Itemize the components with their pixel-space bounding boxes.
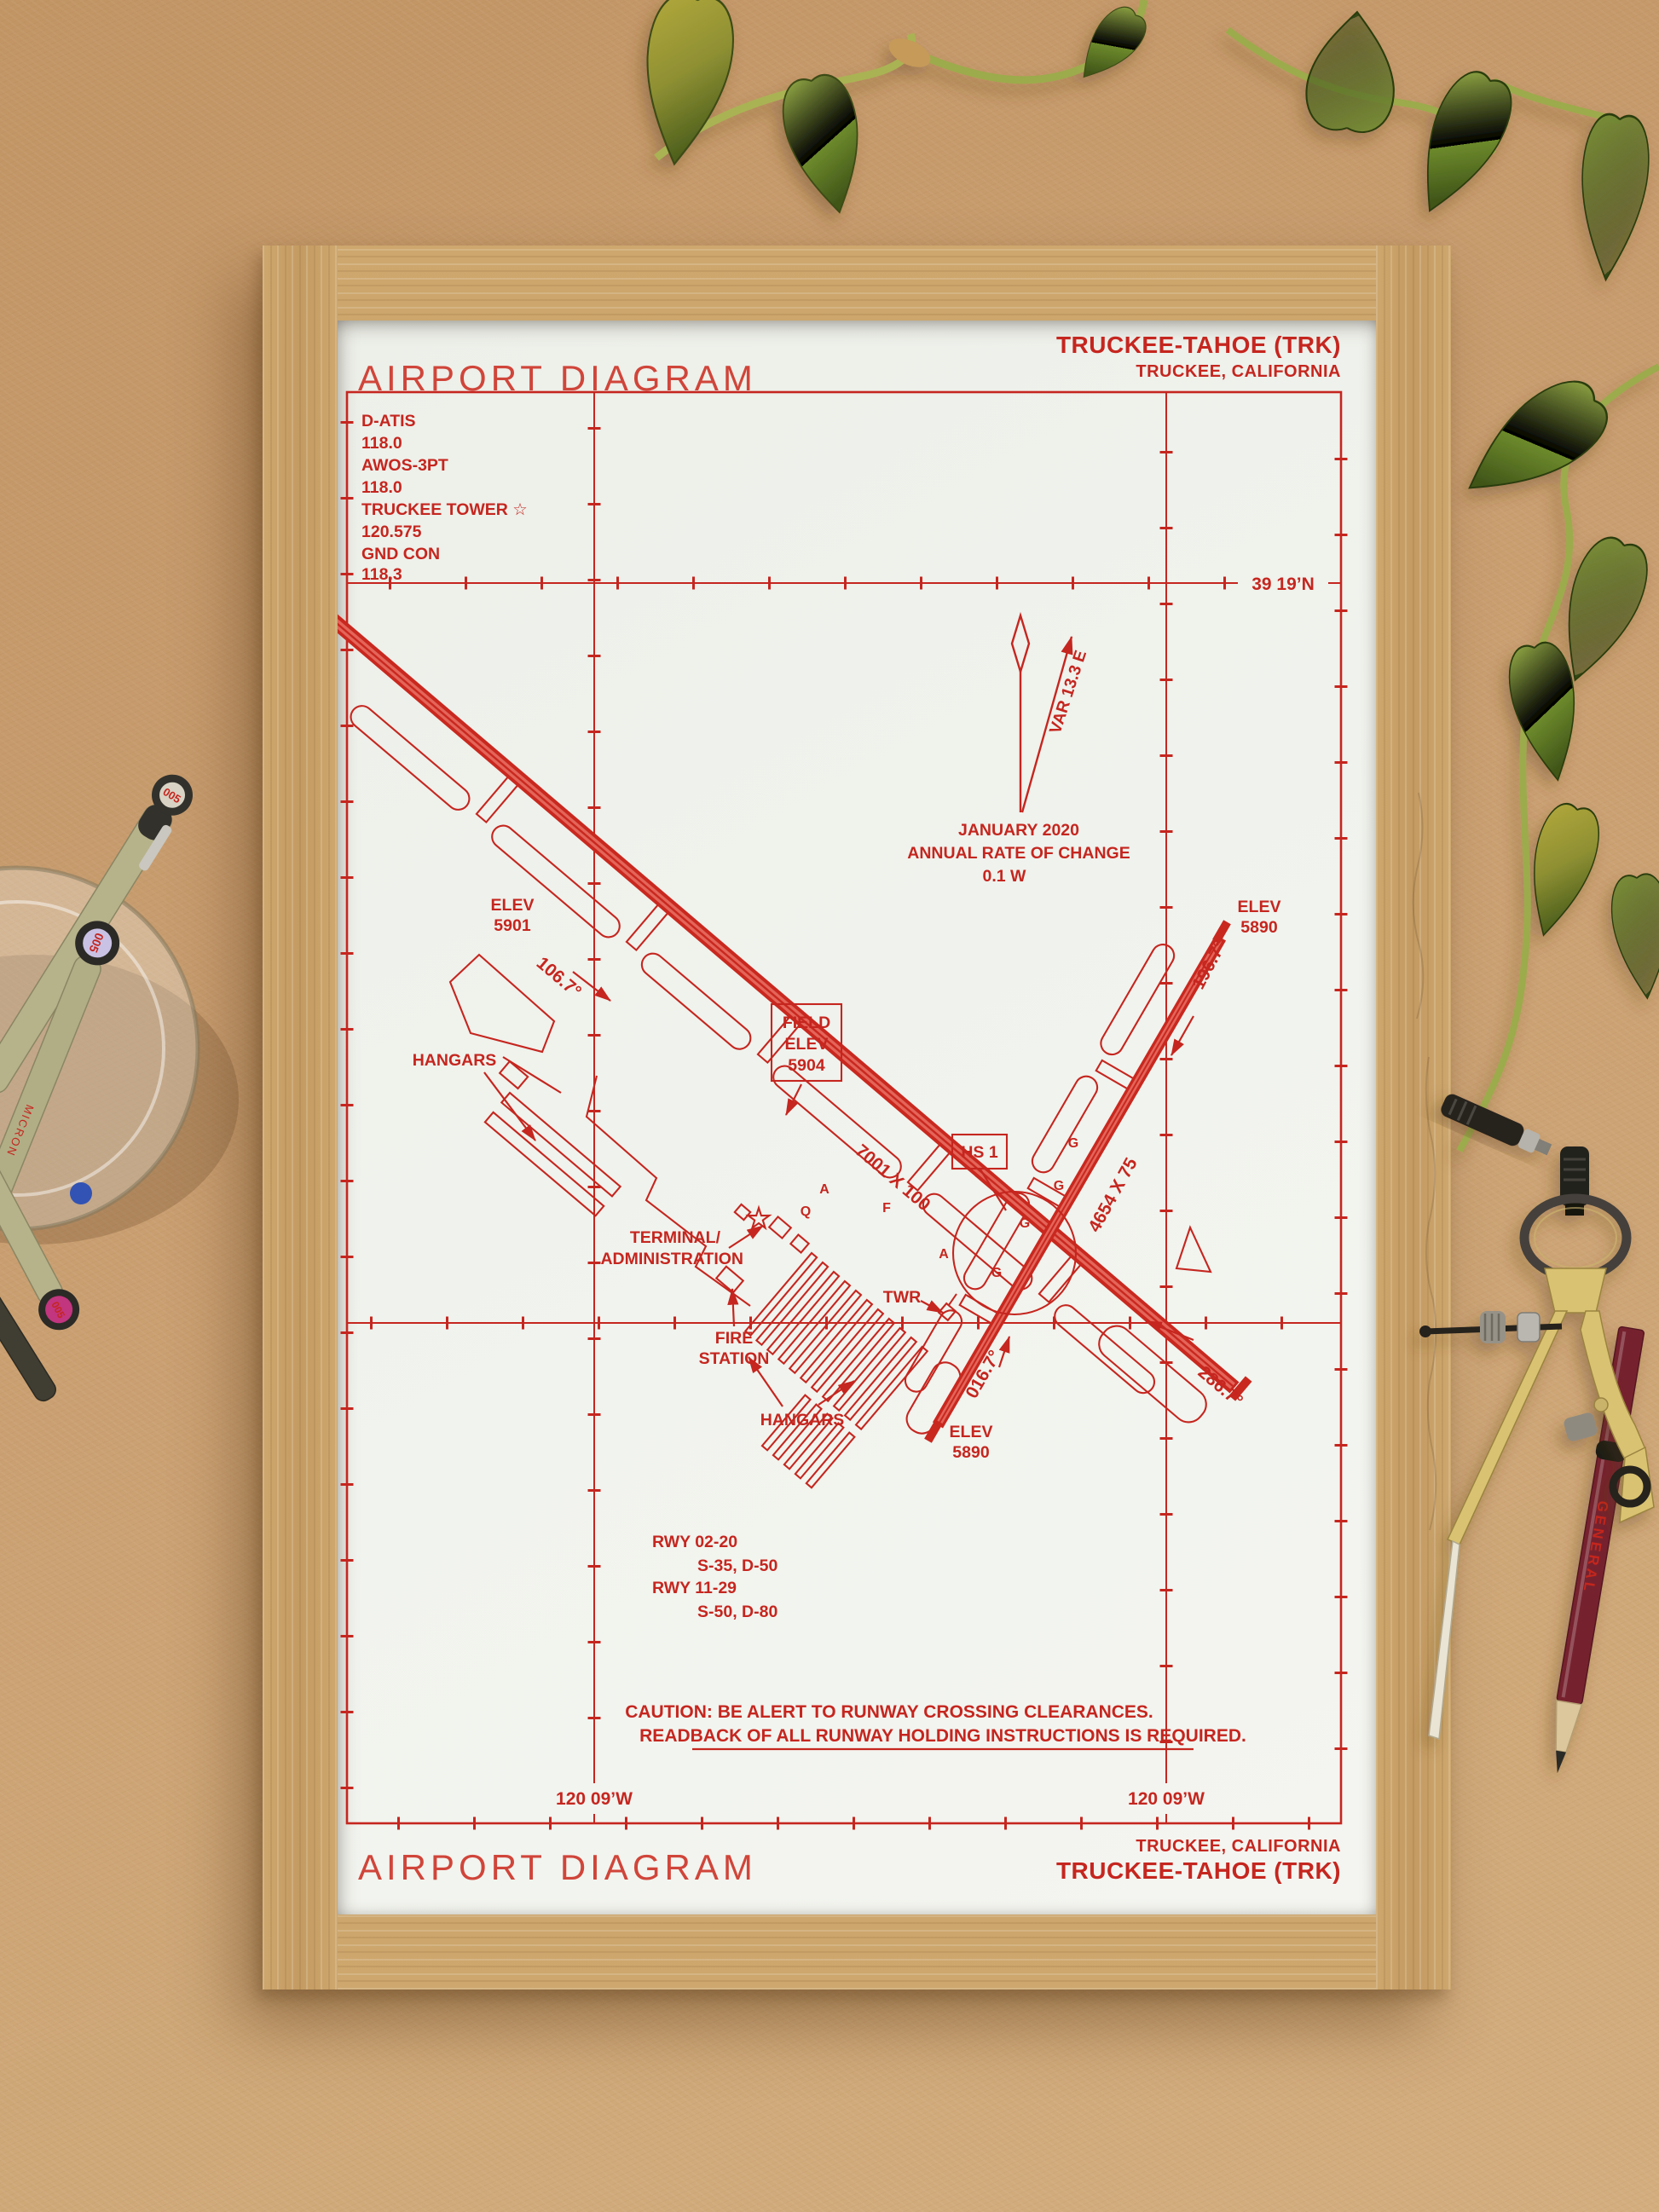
mag-rate: ANNUAL RATE OF CHANGE — [907, 844, 1130, 863]
compass-left-leg — [1448, 1311, 1567, 1545]
runway-11-29 — [338, 569, 1252, 1401]
scene-photo-of-framed-airport-diagram: { "colors": { "ink": "#c5261f", "paper":… — [0, 0, 1659, 2212]
runway-data-block: RWY 02-20 S-35, D-50 RWY 11-29 S-50, D-8… — [652, 1533, 777, 1621]
taxiway-letter: A — [939, 1247, 949, 1262]
field-elev-l3: 5904 — [788, 1056, 825, 1075]
runway-data-line: S-50, D-80 — [697, 1603, 777, 1621]
freq-line: 118.0 — [361, 478, 402, 497]
pencil-wood-tip — [1548, 1701, 1581, 1753]
plant-vine-top-right — [1228, 9, 1653, 283]
freq-line: 118.0 — [361, 434, 402, 453]
elev11-l1: ELEV — [491, 896, 535, 915]
rwy20-heading: 196.7° — [1188, 938, 1230, 993]
runway-data-line: RWY 11-29 — [652, 1579, 737, 1597]
micron-pen: 005 MICRON — [0, 915, 126, 1250]
chart-neatlines — [347, 392, 1341, 1823]
compass-thumbscrew — [1563, 1412, 1598, 1442]
hangars-s-label: HANGARS — [760, 1411, 845, 1429]
pen-cup: 005 005 MICRON 005 — [0, 767, 239, 1405]
runway-data-line: S-35, D-50 — [697, 1556, 777, 1575]
mag-rate-value: 0.1 W — [983, 867, 1027, 886]
elev20-l1: ELEV — [1238, 898, 1281, 916]
freq-line: TRUCKEE TOWER ☆ — [361, 500, 528, 519]
airport-name-bottom: TRUCKEE-TAHOE (TRK) — [1056, 1857, 1341, 1884]
caution-line2: READBACK OF ALL RUNWAY HOLDING INSTRUCTI… — [639, 1726, 1246, 1746]
beacon-star-icon — [749, 1208, 770, 1228]
tower-label: TWR — [883, 1288, 921, 1307]
mag-date: JANUARY 2020 — [958, 821, 1079, 840]
freq-line: 120.575 — [361, 523, 422, 541]
elev20-l2: 5890 — [1240, 918, 1278, 937]
field-elev-l2: ELEV — [785, 1035, 829, 1054]
taxiway-letter: G — [1020, 1216, 1030, 1231]
pencil-graphite-tip — [1552, 1751, 1566, 1775]
taxiway-letter: A — [819, 1182, 829, 1197]
airport-diagram-chart: AIRPORT DIAGRAM TRUCKEE-TAHOE (TRK) TRUC… — [338, 321, 1376, 1915]
poster-paper: AIRPORT DIAGRAM TRUCKEE-TAHOE (TRK) TRUC… — [338, 321, 1376, 1915]
plant-vine-right — [1448, 367, 1659, 1151]
hangars-nw-label: HANGARS — [413, 1051, 497, 1070]
compass-right-leg — [1581, 1311, 1645, 1459]
glass-cup — [0, 868, 198, 1229]
drafting-compass — [1419, 1146, 1654, 1739]
field-elev-l1: FIELD — [783, 1014, 830, 1032]
elev02-l2: 5890 — [952, 1443, 990, 1462]
freq-line: GND CON — [361, 545, 440, 563]
latitude-label: 39 19’N — [1251, 575, 1315, 594]
hot-spot-label: HS 1 — [961, 1143, 998, 1162]
terminal-l2: ADMINISTRATION — [600, 1250, 743, 1268]
freq-line: AWOS-3PT — [361, 456, 448, 475]
compass-clamp-ring — [1613, 1470, 1647, 1504]
longitude-left: 120 09’W — [556, 1789, 633, 1809]
rwy1129-size: 7001 X 100 — [852, 1141, 934, 1215]
pencil-brand-label: GENERAL — [1580, 1499, 1611, 1596]
buildings — [470, 1061, 957, 1487]
taxiway-letter: Q — [801, 1204, 811, 1219]
freq-line: D-ATIS — [361, 412, 416, 430]
dark-pen — [0, 1256, 59, 1405]
frequency-box: D-ATIS 118.0 AWOS-3PT 118.0 TRUCKEE TOWE… — [361, 412, 528, 584]
terminal-l1: TERMINAL/ — [630, 1228, 721, 1247]
runway-02-20 — [924, 920, 1231, 1443]
elev11-l2: 5901 — [494, 916, 531, 935]
airport-name-top: TRUCKEE-TAHOE (TRK) — [1056, 332, 1341, 358]
taxiway-outlines — [346, 702, 1212, 1439]
pencil-grip-ring — [1594, 1440, 1627, 1464]
taxiway-letter: G — [1068, 1136, 1078, 1151]
elev02-l1: ELEV — [950, 1423, 993, 1441]
leader-arrows — [484, 972, 1194, 1406]
taxiway-letter: G — [1054, 1179, 1064, 1193]
airport-city-bottom: TRUCKEE, CALIFORNIA — [1136, 1837, 1341, 1856]
compass-knob — [1560, 1146, 1589, 1206]
metal-bit — [1438, 1092, 1554, 1161]
picture-frame: AIRPORT DIAGRAM TRUCKEE-TAHOE (TRK) TRUC… — [263, 245, 1451, 1990]
compass-ring — [1524, 1198, 1627, 1277]
micron-pen: 005 — [0, 767, 200, 1101]
poster-title-top: AIRPORT DIAGRAM — [358, 358, 757, 398]
fire-l1: FIRE — [715, 1329, 753, 1348]
plant-vine-top — [633, 0, 1153, 220]
runway-data-line: RWY 02-20 — [652, 1533, 737, 1551]
pen-size-label: 005 — [86, 931, 107, 955]
taxiway-letter: F — [882, 1201, 891, 1216]
pen-size-label: 005 — [161, 785, 183, 806]
taxiway-letter: G — [991, 1266, 1002, 1280]
fire-l2: STATION — [699, 1349, 770, 1368]
pen-cap-blue — [70, 1182, 92, 1204]
freq-line: 118.3 — [361, 565, 402, 584]
poster-title-bottom: AIRPORT DIAGRAM — [358, 1847, 757, 1887]
micron-pen: 005 — [0, 1066, 87, 1337]
airport-city-top: TRUCKEE, CALIFORNIA — [1136, 362, 1341, 381]
caution-line1: CAUTION: BE ALERT TO RUNWAY CROSSING CLE… — [625, 1702, 1153, 1722]
rwy11-heading: 106.7° — [533, 953, 585, 1002]
pen-size-label: 005 — [49, 1300, 67, 1321]
longitude-right: 120 09’W — [1128, 1789, 1205, 1809]
pen-brand-label: MICRON — [4, 1103, 37, 1159]
var-label: VAR 13.3 E — [1046, 648, 1090, 736]
pencil: GENERAL — [1542, 1326, 1647, 1776]
